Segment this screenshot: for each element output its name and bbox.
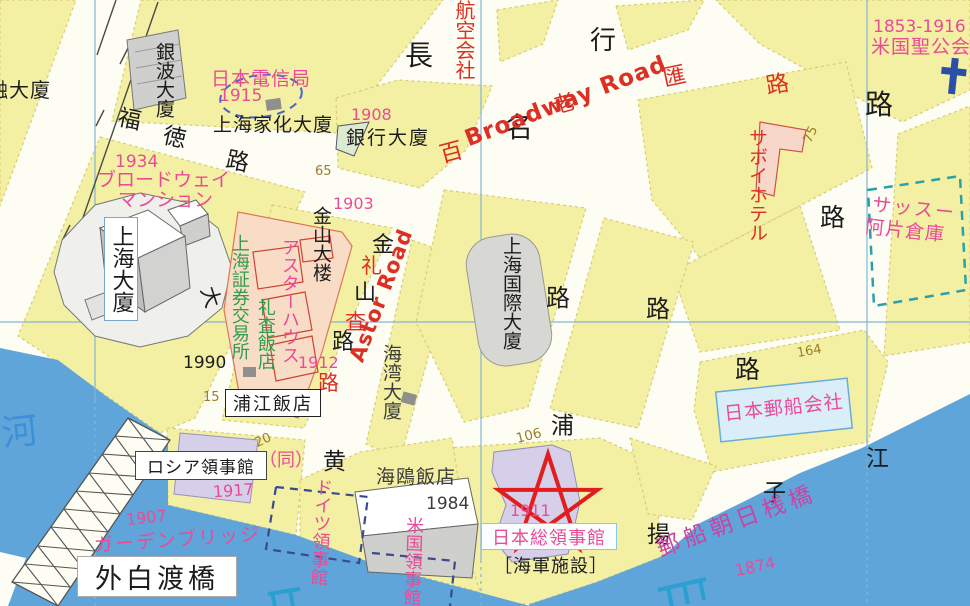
block — [497, 0, 558, 62]
site-label-church-years: 1853-1916 — [873, 19, 966, 37]
lot-number: 65 — [315, 165, 332, 179]
street-char: 路 — [735, 357, 760, 383]
shanghai-mansion-label-box: 上海大廈 — [104, 217, 138, 321]
street-char: 徳 — [161, 124, 189, 152]
street-char: 路 — [865, 90, 893, 119]
site-label-shanghai-mansion: 上海大廈 — [109, 225, 132, 313]
street-char: 江 — [866, 447, 889, 471]
site-label-kinzan: 金山大楼 — [310, 206, 330, 282]
site-label-waibaidu: 外白渡橋 — [95, 557, 219, 596]
site-label-navy-facility: ［海軍施設］ — [494, 558, 608, 577]
year-label: 1915 — [219, 88, 262, 106]
street-char: 路 — [820, 205, 845, 231]
year-label: 1903 — [333, 196, 374, 213]
site-label-kaiwan: 海湾大廈 — [380, 344, 400, 420]
year-label: 1990 — [183, 355, 226, 373]
site-label-hojiang: 浦江飯店 — [233, 390, 313, 416]
waibaidu-label-box: 外白渡橋 — [77, 556, 237, 597]
street-char: 浦 — [551, 414, 574, 438]
japan-consulate-label-box: 日本総領事館 — [481, 523, 617, 550]
site-label-japan-consulate: 日本総領事館 — [492, 524, 606, 550]
site-label-ginko: 銀行大廈 — [346, 129, 430, 149]
site-label-ginpa: 銀波大廈 — [153, 42, 173, 118]
river-name-char: 河 — [0, 412, 40, 453]
site-label-savoy: サボイホテル — [746, 128, 766, 242]
lot-number: 15 — [203, 391, 220, 405]
site-label-kokusai: 上海国際大廈 — [500, 236, 520, 350]
hojiang-hotel-label-box: 浦江飯店 — [225, 389, 321, 417]
site-label-church: 米国聖公会 — [871, 38, 970, 58]
site-label-russia: ロシア領事館 — [147, 453, 255, 478]
site-label-russia-note: （同） — [259, 452, 313, 471]
building-marker — [265, 98, 281, 111]
site-label-usa: 米国領事館 — [400, 516, 422, 606]
street-char: 黄 — [323, 450, 346, 474]
site-label-kaka: 上海家化大廈 — [213, 116, 333, 136]
year-label: 1917 — [212, 482, 254, 502]
site-label-airline: 航空会社 — [453, 0, 474, 80]
site-label-seagull: 海鴎飯店 — [376, 468, 456, 488]
block — [0, 0, 76, 206]
street-char: 路 — [646, 297, 670, 322]
site-label-yudaika: 融大廈 — [0, 80, 51, 101]
year-label: 1911 — [510, 503, 551, 520]
street-char: 長 — [405, 41, 433, 70]
map-canvas: 長 名 行 路 路 路 路 路 福 徳 路 金 山 路 礼 査 路 百 老 匯 … — [0, 0, 970, 606]
street-char: 行 — [590, 28, 616, 55]
street-char: 福 — [116, 106, 144, 134]
site-label-shoken: 上海証券交易所 — [229, 234, 248, 360]
year-label: 1984 — [426, 496, 469, 514]
site-label-nyk: 日本郵船会社 — [723, 393, 844, 425]
street-char: 路 — [318, 372, 339, 394]
site-label-reisa-hotel: 礼査飯店 — [255, 298, 274, 370]
year-label: 1908 — [351, 107, 392, 124]
street-char: 路 — [546, 286, 570, 311]
site-label-astor-house: アスターハウス — [279, 238, 298, 364]
site-label-broadway-mansion: マンション — [118, 191, 213, 211]
year-label: 1912 — [298, 355, 339, 372]
block — [616, 0, 704, 50]
site-label-broadway-mansion: ブロードウェイ — [97, 171, 230, 191]
street-char: 路 — [764, 71, 791, 99]
russia-consulate-label-box: ロシア領事館 — [135, 451, 267, 480]
